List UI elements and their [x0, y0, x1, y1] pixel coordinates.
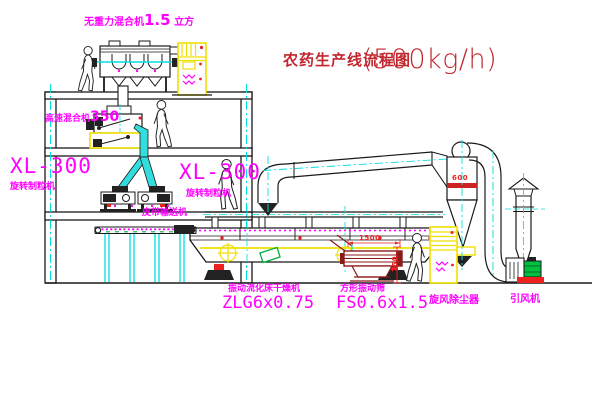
granulator-left-name-label: 旋转制粒机	[10, 183, 55, 192]
sieve-height-dimension: 750	[392, 256, 399, 272]
sieve-model-label: FS0.6x1.5	[336, 295, 428, 312]
flow-diagram-page: 农药生产线流程图 (500kg/h) 无重力混合机1.5 立方 高速混合机350…	[0, 0, 600, 403]
control-cabinet-2	[430, 227, 457, 283]
belt-conveyor-label: 皮带输送机	[142, 209, 187, 218]
fluid-bed-dryer-drawing	[190, 206, 445, 280]
cyclone-diameter-dimension: 600	[452, 175, 468, 182]
high-speed-mixer-label: 高速混合机350	[45, 110, 119, 124]
fan-name-label: 引风机	[510, 295, 540, 305]
cyclone-name-label: 旋风除尘器	[429, 296, 479, 306]
dryer-exhaust-duct	[258, 152, 447, 216]
person-figure	[154, 100, 171, 146]
capacity-label: (500kg/h)	[362, 46, 497, 73]
gravity-mixer-label: 无重力混合机1.5 立方	[84, 13, 194, 28]
dryer-model-label: ZLG6x0.75	[222, 295, 314, 312]
high-speed-mixer-size: 350	[90, 109, 119, 125]
fan-drawing	[506, 257, 544, 283]
person-figure	[78, 46, 95, 90]
control-cabinet-1	[172, 43, 212, 95]
gravity-mixer-name: 无重力混合机	[84, 17, 144, 28]
granulator-right-model-label: XL-300	[179, 162, 261, 183]
gravity-mixer-unit: 立方	[174, 17, 194, 28]
granulator-right-name-label: 旋转制粒机	[186, 190, 231, 199]
y-chute	[118, 157, 157, 187]
granulator-left-model-label: XL-300	[10, 156, 92, 177]
belt-conveyor-drawing	[95, 225, 196, 282]
gravity-mixer-size: 1.5	[144, 11, 171, 29]
high-speed-mixer-name: 高速混合机	[45, 114, 90, 124]
sieve-length-dimension: 1500	[359, 235, 380, 242]
